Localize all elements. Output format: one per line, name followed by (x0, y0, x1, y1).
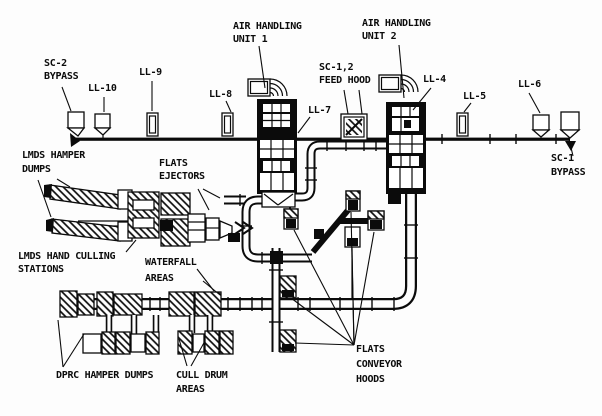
label-air-handling-unit-1: AIR HANDLINGUNIT 1 (233, 20, 302, 46)
label-cull-drum-areas: CULL DRUMAREAS (176, 369, 228, 397)
ll6-hopper (533, 115, 549, 137)
label-ll8: LL-8 (209, 88, 232, 101)
label-lmds-hamper-dumps: LMDS HAMPERDUMPS (22, 149, 85, 177)
ll8-inline-unit (222, 113, 233, 136)
label-sc2-bypass: SC-2BYPASS (44, 57, 78, 83)
label-flats-ejectors: FLATSEJECTORS (159, 157, 205, 183)
conveyor-drop-ducts (109, 315, 210, 334)
label-ll10: LL-10 (88, 82, 117, 95)
cull-drum-area-boxes (178, 331, 233, 354)
hand-culling-stations-machinery (128, 192, 190, 246)
flats-hood-a (284, 209, 298, 229)
flats-hood-d (345, 227, 360, 247)
ahu1-ahu2-connecting-duct (294, 139, 386, 197)
label-ll7: LL-7 (308, 104, 331, 117)
label-dprc-hamper-dumps: DPRC HAMPER DUMPS (56, 369, 153, 382)
sc1-bypass-hopper (561, 112, 579, 138)
label-ll5: LL-5 (463, 90, 486, 103)
flats-hood-f (280, 330, 296, 352)
flats-hood-b (346, 191, 360, 211)
label-flats-conveyor-hoods: FLATSCONVEYORHOODS (356, 342, 402, 387)
flats-hood-c (368, 211, 384, 230)
dprc-hamper-dump-boxes (83, 332, 159, 354)
label-waterfall-areas: WATERFALLAREAS (145, 255, 197, 287)
label-ll6: LL-6 (518, 78, 541, 91)
label-lmds-hand-culling-stations: LMDS HAND CULLINGSTATIONS (18, 250, 115, 276)
label-sc12-feed-hood: SC-1,2FEED HOOD (319, 61, 371, 87)
sc2-bypass-hopper (68, 112, 84, 136)
label-air-handling-unit-2: AIR HANDLINGUNIT 2 (362, 17, 431, 43)
air-handling-unit-1 (248, 79, 297, 207)
ll9-inline-unit (147, 113, 158, 136)
lmds-hamper-dump-chutes (44, 184, 132, 241)
ll10-hopper (95, 114, 110, 138)
diagram-linework (0, 0, 602, 416)
air-handling-unit-2 (379, 75, 426, 204)
ll5-inline-unit (457, 113, 468, 136)
label-sc1-bypass: SC-1BYPASS (551, 152, 585, 180)
label-ll4: LL-4 (423, 73, 446, 86)
waterfall-area-boxes (60, 291, 221, 317)
sc12-feed-hood-box (341, 114, 367, 140)
flats-hood-e (280, 276, 296, 298)
label-ll9: LL-9 (139, 66, 162, 79)
diagram-page: AIR HANDLINGUNIT 1 AIR HANDLINGUNIT 2 SC… (0, 0, 602, 416)
